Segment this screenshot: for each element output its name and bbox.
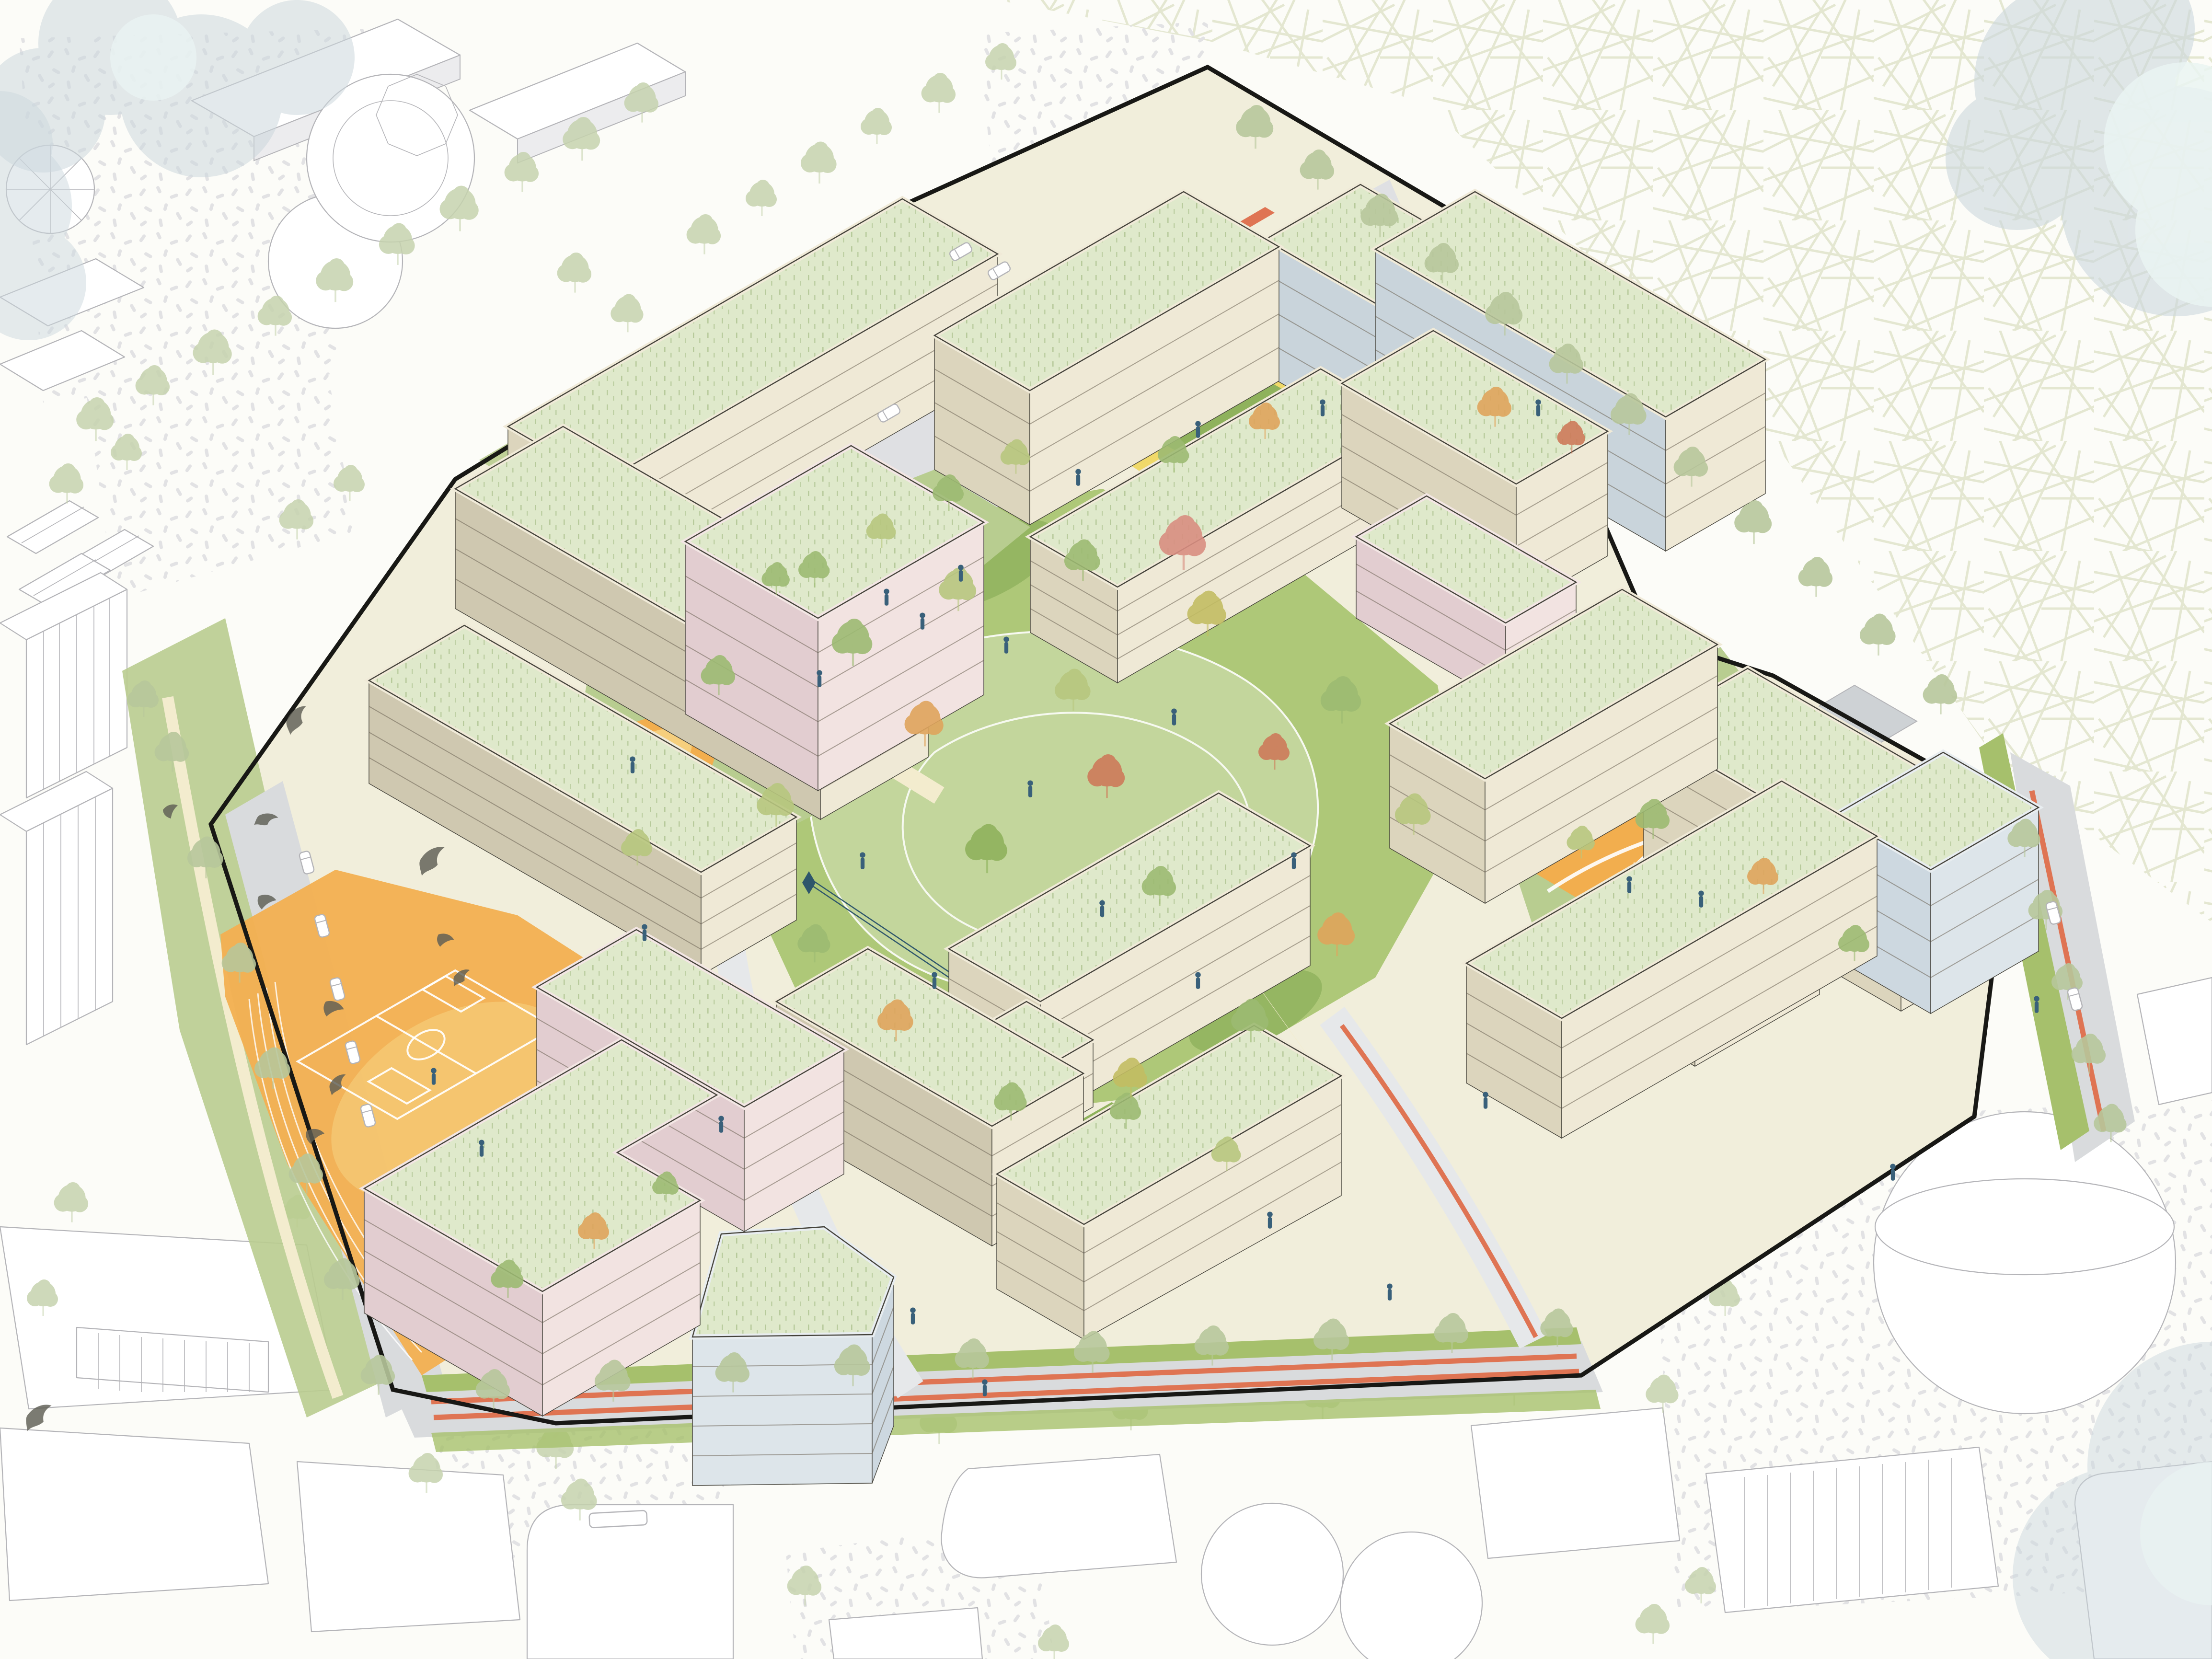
context-colonnade-building <box>1706 1447 1998 1613</box>
context-silo <box>1201 1503 1343 1645</box>
bus <box>589 1510 647 1528</box>
masterplan-illustration <box>0 0 2212 1659</box>
context-rounded-building <box>527 1505 733 1659</box>
